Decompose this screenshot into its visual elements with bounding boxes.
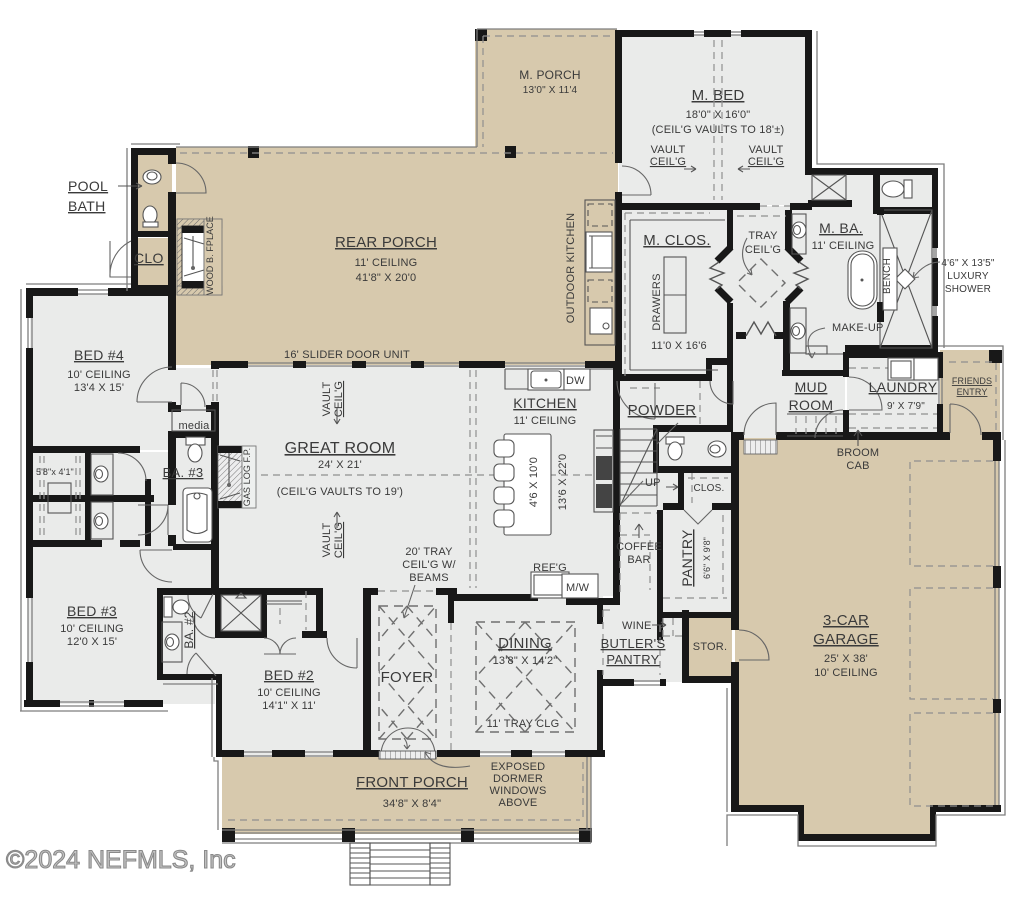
svg-text:MUD: MUD — [795, 379, 828, 395]
svg-text:BEAMS: BEAMS — [409, 572, 449, 584]
svg-text:GREAT ROOM: GREAT ROOM — [285, 440, 396, 457]
svg-text:M. PORCH: M. PORCH — [519, 68, 581, 82]
svg-text:9' X 7'9": 9' X 7'9" — [887, 401, 925, 412]
svg-text:(CEIL'G VAULTS TO 18'±): (CEIL'G VAULTS TO 18'±) — [652, 124, 785, 136]
svg-text:24' X 21': 24' X 21' — [318, 459, 362, 471]
svg-text:12'0 X 15': 12'0 X 15' — [67, 636, 117, 648]
svg-text:WINDOWS: WINDOWS — [489, 785, 546, 797]
svg-text:25' X 38': 25' X 38' — [824, 653, 868, 665]
svg-text:(CEIL'G VAULTS TO 19'): (CEIL'G VAULTS TO 19') — [277, 486, 403, 498]
svg-text:ROOM: ROOM — [789, 397, 834, 413]
svg-text:POWDER: POWDER — [628, 402, 697, 419]
svg-text:13'0" X 11'4: 13'0" X 11'4 — [523, 85, 578, 96]
svg-text:MAKE-UP: MAKE-UP — [832, 322, 884, 334]
svg-text:STOR.: STOR. — [693, 641, 727, 653]
svg-text:13'6 X 22'0: 13'6 X 22'0 — [557, 454, 569, 511]
svg-text:VAULT: VAULT — [651, 144, 686, 156]
svg-text:PANTRY: PANTRY — [606, 652, 659, 667]
svg-text:BATH: BATH — [68, 198, 106, 214]
svg-text:CLOS.: CLOS. — [693, 483, 724, 494]
svg-text:M. BED: M. BED — [692, 87, 745, 104]
svg-text:M. BA.: M. BA. — [819, 220, 863, 236]
svg-text:4'6" X 13'5": 4'6" X 13'5" — [941, 258, 995, 269]
svg-text:18'0" X 16'0": 18'0" X 16'0" — [686, 109, 751, 121]
svg-text:FOYER: FOYER — [381, 669, 434, 686]
svg-text:CEIL'G W/: CEIL'G W/ — [402, 559, 456, 571]
svg-text:VAULT: VAULT — [321, 382, 333, 417]
svg-text:TRAY: TRAY — [748, 230, 778, 242]
svg-text:13'8" X 14'2": 13'8" X 14'2" — [493, 655, 558, 667]
svg-text:M. CLOS.: M. CLOS. — [643, 232, 710, 249]
svg-text:CEIL'G: CEIL'G — [333, 522, 345, 558]
svg-text:BED #4: BED #4 — [74, 347, 124, 363]
svg-text:LAUNDRY: LAUNDRY — [869, 379, 938, 395]
svg-text:10' CEILING: 10' CEILING — [257, 687, 321, 699]
svg-text:14'1" X 11': 14'1" X 11' — [262, 700, 316, 712]
svg-text:DRAWERS: DRAWERS — [651, 273, 663, 330]
svg-text:10' CEILING: 10' CEILING — [814, 667, 878, 679]
svg-text:CEIL'G: CEIL'G — [650, 156, 686, 168]
svg-text:13'4 X 15': 13'4 X 15' — [74, 382, 124, 394]
svg-text:OUTDOOR KITCHEN: OUTDOOR KITCHEN — [565, 213, 577, 324]
svg-text:BED #3: BED #3 — [67, 603, 117, 619]
svg-text:41'8" X 20'0: 41'8" X 20'0 — [356, 272, 417, 284]
svg-text:DINING: DINING — [498, 635, 552, 652]
svg-text:POOL: POOL — [68, 178, 108, 194]
svg-text:CEIL'G: CEIL'G — [333, 381, 345, 417]
svg-text:BAR: BAR — [627, 554, 650, 566]
svg-text:BA. #3: BA. #3 — [163, 465, 204, 480]
svg-text:11'0 X 16'6: 11'0 X 16'6 — [651, 340, 707, 352]
svg-text:LUXURY: LUXURY — [947, 271, 989, 282]
svg-text:6'6" X 9'8": 6'6" X 9'8" — [702, 537, 712, 579]
svg-text:11' CEILING: 11' CEILING — [514, 415, 577, 427]
svg-text:SHOWER: SHOWER — [945, 284, 991, 295]
svg-text:M/W: M/W — [566, 582, 590, 594]
svg-text:UP: UP — [645, 477, 661, 489]
svg-text:ABOVE: ABOVE — [499, 797, 538, 809]
svg-text:DORMER: DORMER — [493, 773, 543, 785]
svg-text:ENTRY: ENTRY — [957, 387, 988, 397]
svg-text:CEIL'G: CEIL'G — [745, 244, 781, 256]
svg-text:11' CEILING: 11' CEILING — [812, 240, 875, 252]
svg-text:PANTRY: PANTRY — [679, 529, 695, 587]
svg-text:16' SLIDER DOOR UNIT: 16' SLIDER DOOR UNIT — [284, 349, 410, 361]
svg-text:5'8"x 4'1": 5'8"x 4'1" — [36, 467, 74, 477]
svg-text:WOOD B. FPLACE: WOOD B. FPLACE — [205, 216, 215, 295]
svg-text:FRONT PORCH: FRONT PORCH — [356, 774, 468, 791]
svg-text:CAB: CAB — [846, 460, 869, 472]
svg-text:VAULT: VAULT — [321, 523, 333, 558]
svg-text:BROOM: BROOM — [837, 447, 880, 459]
svg-text:BUTLER'S: BUTLER'S — [601, 636, 666, 651]
svg-text:10' CEILING: 10' CEILING — [60, 623, 124, 635]
svg-text:BED #2: BED #2 — [264, 667, 314, 683]
svg-text:BA. #2: BA. #2 — [182, 611, 196, 648]
svg-text:media: media — [179, 420, 211, 432]
svg-text:4'6 X 10'0: 4'6 X 10'0 — [528, 457, 540, 507]
svg-text:20' TRAY: 20' TRAY — [405, 546, 453, 558]
svg-text:10' CEILING: 10' CEILING — [67, 369, 131, 381]
svg-text:34'8" X 8'4": 34'8" X 8'4" — [383, 798, 441, 810]
svg-text:11' TRAY CLG: 11' TRAY CLG — [487, 718, 560, 730]
svg-text:REAR PORCH: REAR PORCH — [335, 234, 437, 251]
svg-text:©2024 NEFMLS, Inc: ©2024 NEFMLS, Inc — [6, 846, 236, 874]
svg-text:COFFEE: COFFEE — [616, 541, 662, 553]
svg-text:DW: DW — [566, 375, 585, 387]
svg-text:VAULT: VAULT — [749, 144, 784, 156]
svg-text:GAS LOG F.P.: GAS LOG F.P. — [242, 448, 252, 507]
svg-text:11' CEILING: 11' CEILING — [355, 257, 418, 269]
svg-text:CEIL'G: CEIL'G — [748, 156, 784, 168]
svg-text:FRIENDS: FRIENDS — [952, 376, 992, 386]
svg-text:CLO: CLO — [134, 250, 164, 266]
svg-text:WINE: WINE — [622, 620, 652, 632]
svg-text:REF'G: REF'G — [533, 562, 567, 574]
svg-text:EXPOSED: EXPOSED — [491, 761, 546, 773]
svg-text:3-CAR: 3-CAR — [823, 612, 869, 629]
svg-text:KITCHEN: KITCHEN — [513, 395, 577, 411]
svg-text:GARAGE: GARAGE — [813, 631, 878, 648]
svg-text:BENCH: BENCH — [882, 258, 893, 294]
